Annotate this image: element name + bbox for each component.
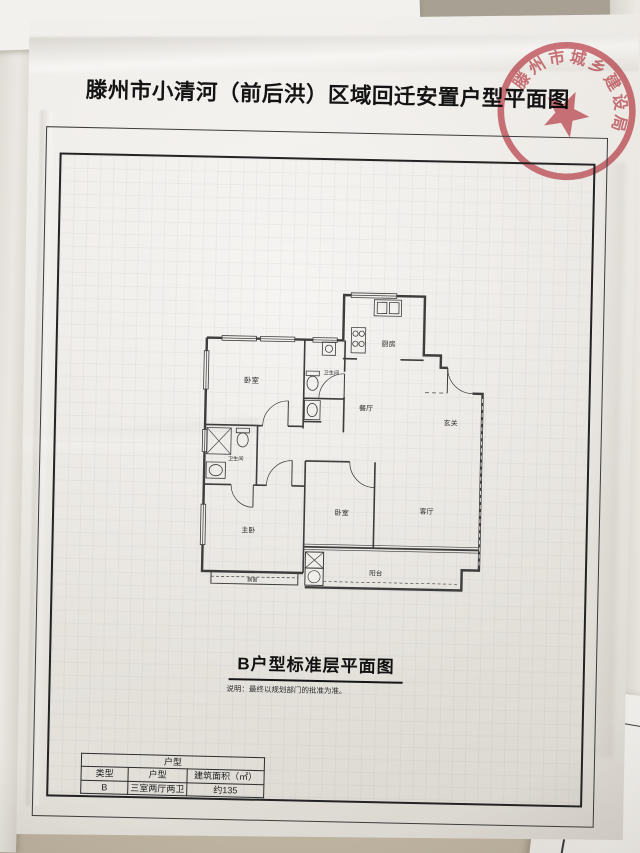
plan-caption: B户型标准层平面图: [229, 649, 403, 684]
toilet-icon: [236, 428, 249, 433]
table-cell-area: 约135: [187, 783, 264, 798]
room-label-bedroom2: 卧室: [335, 508, 349, 517]
washer-icon: [322, 342, 335, 355]
seal-star-icon: [536, 82, 596, 141]
room-label-foyer: 玄关: [443, 418, 457, 427]
plan-balcony-band: [303, 544, 480, 585]
room-label-baywindow: 飘窗: [247, 576, 257, 583]
room-label-dining: 餐厅: [359, 403, 373, 412]
room-label-bath2: 卫生间: [228, 454, 244, 462]
room-label-kitchen: 厨房: [381, 339, 395, 348]
plan-shaft-symbol: [305, 552, 324, 586]
room-label-master: 主卧: [241, 525, 255, 534]
table-cell-type: B: [81, 780, 128, 794]
plan-dashed-lines: [421, 393, 482, 567]
floor-plan: 卧室 卫生间 厨房 餐厅 玄关 卫生间 主卧 卧室 客厅 阳台 飘窗: [188, 269, 493, 611]
main-paper: 滕州市小清河（前后洪）区域回迁安置户型平面图 滕州市城乡建设局: [1, 0, 640, 848]
room-label-bedroom1: 卧室: [244, 375, 260, 385]
spec-table: 户型 类型 户型 建筑面积（㎡） B 三室两厅两卫 约135: [80, 753, 265, 799]
plan-doors: [231, 363, 473, 511]
table-cell-unit: 三室两厅两卫: [128, 781, 187, 796]
table-col-type: 类型: [81, 767, 128, 781]
toilet-icon: [306, 371, 319, 376]
room-label-bath1: 卫生间: [324, 368, 340, 376]
photo-of-floorplan-poster: 滕州市小清河（前后洪）区域回迁安置户型平面图 滕州市城乡建设局: [0, 0, 640, 853]
room-label-balcony: 阳台: [369, 568, 383, 577]
table-col-unit: 户型: [128, 768, 187, 783]
plan-windows: [200, 290, 397, 549]
room-label-living: 客厅: [419, 507, 433, 516]
